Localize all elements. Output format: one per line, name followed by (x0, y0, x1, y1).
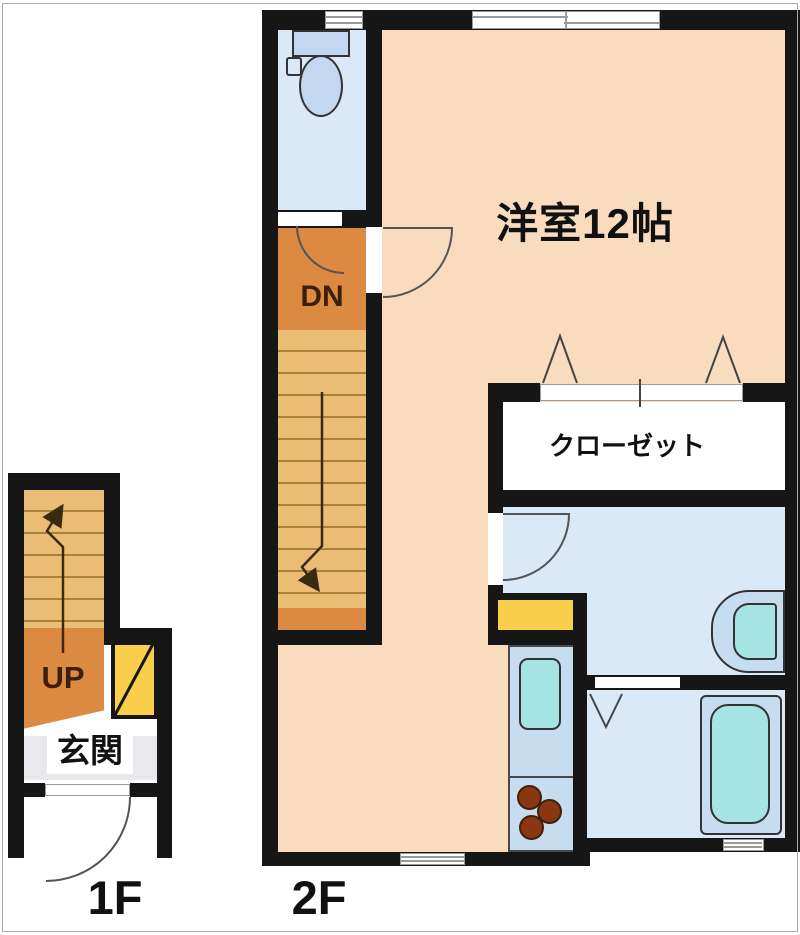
toilet-handle-icon (286, 57, 302, 76)
wall-1f-stair-right (104, 473, 120, 645)
wall-kitchen-washroom-divider (573, 593, 587, 852)
window-toilet (325, 11, 363, 29)
entrance-label: 玄関 (40, 733, 140, 769)
closet-label: クローゼット (507, 430, 747, 462)
wall-stairwell-bottom (262, 630, 382, 645)
stove-burner-icon-3 (519, 815, 544, 840)
floor-2f-label: 2F (269, 872, 369, 924)
door-arc-entrance (46, 797, 130, 881)
wall-closet-bottom (488, 490, 785, 507)
toilet-bowl-icon (299, 55, 343, 117)
wall-1f-door-stub-right (130, 783, 172, 797)
bathtub-icon (710, 704, 770, 824)
closet-door-track (540, 384, 743, 401)
wall-2f-right (785, 10, 800, 852)
wall-stairwell-right (366, 10, 382, 645)
door-opening-washroom (488, 513, 503, 585)
wall-2f-left (262, 10, 278, 866)
entrance-door-leaf (45, 784, 130, 796)
stair-up-label: UP (23, 660, 103, 696)
stair-landing-2f (278, 228, 366, 330)
door-opening-bathroom (595, 677, 680, 688)
stair-edge-band-2f (278, 608, 366, 630)
floor-plan-image: 洋室12帖 クローゼット DN UP 玄関 1F 2F (0, 0, 800, 935)
wall-closet-top-left-stub (488, 383, 540, 402)
room-size-label: 洋室12帖 (435, 198, 735, 250)
wall-closet-top-right-stub (743, 383, 785, 402)
door-opening-room-entry (366, 227, 382, 293)
window-room-bottom (400, 853, 465, 865)
window-bathroom (723, 839, 764, 851)
shoe-cabinet-icon (111, 637, 158, 719)
storage-box-yellow (498, 600, 575, 630)
toilet-tank-icon (292, 30, 350, 57)
window-room-top (472, 11, 660, 29)
kitchen-sink-icon (519, 658, 561, 730)
stair-dn-label: DN (282, 280, 362, 314)
door-opening-toilet (278, 212, 342, 226)
wall-1f-right (157, 628, 172, 858)
floor-1f-label: 1F (65, 872, 165, 924)
wall-1f-door-stub-left (8, 783, 45, 797)
staircase-1f (24, 490, 104, 628)
staircase-2f (278, 330, 366, 608)
wall-1f-left (8, 473, 24, 858)
wall-2f-bottom-bathroom (573, 838, 800, 852)
washbasin-bowl-icon (733, 603, 777, 660)
washroom-floor-upper (503, 507, 785, 595)
